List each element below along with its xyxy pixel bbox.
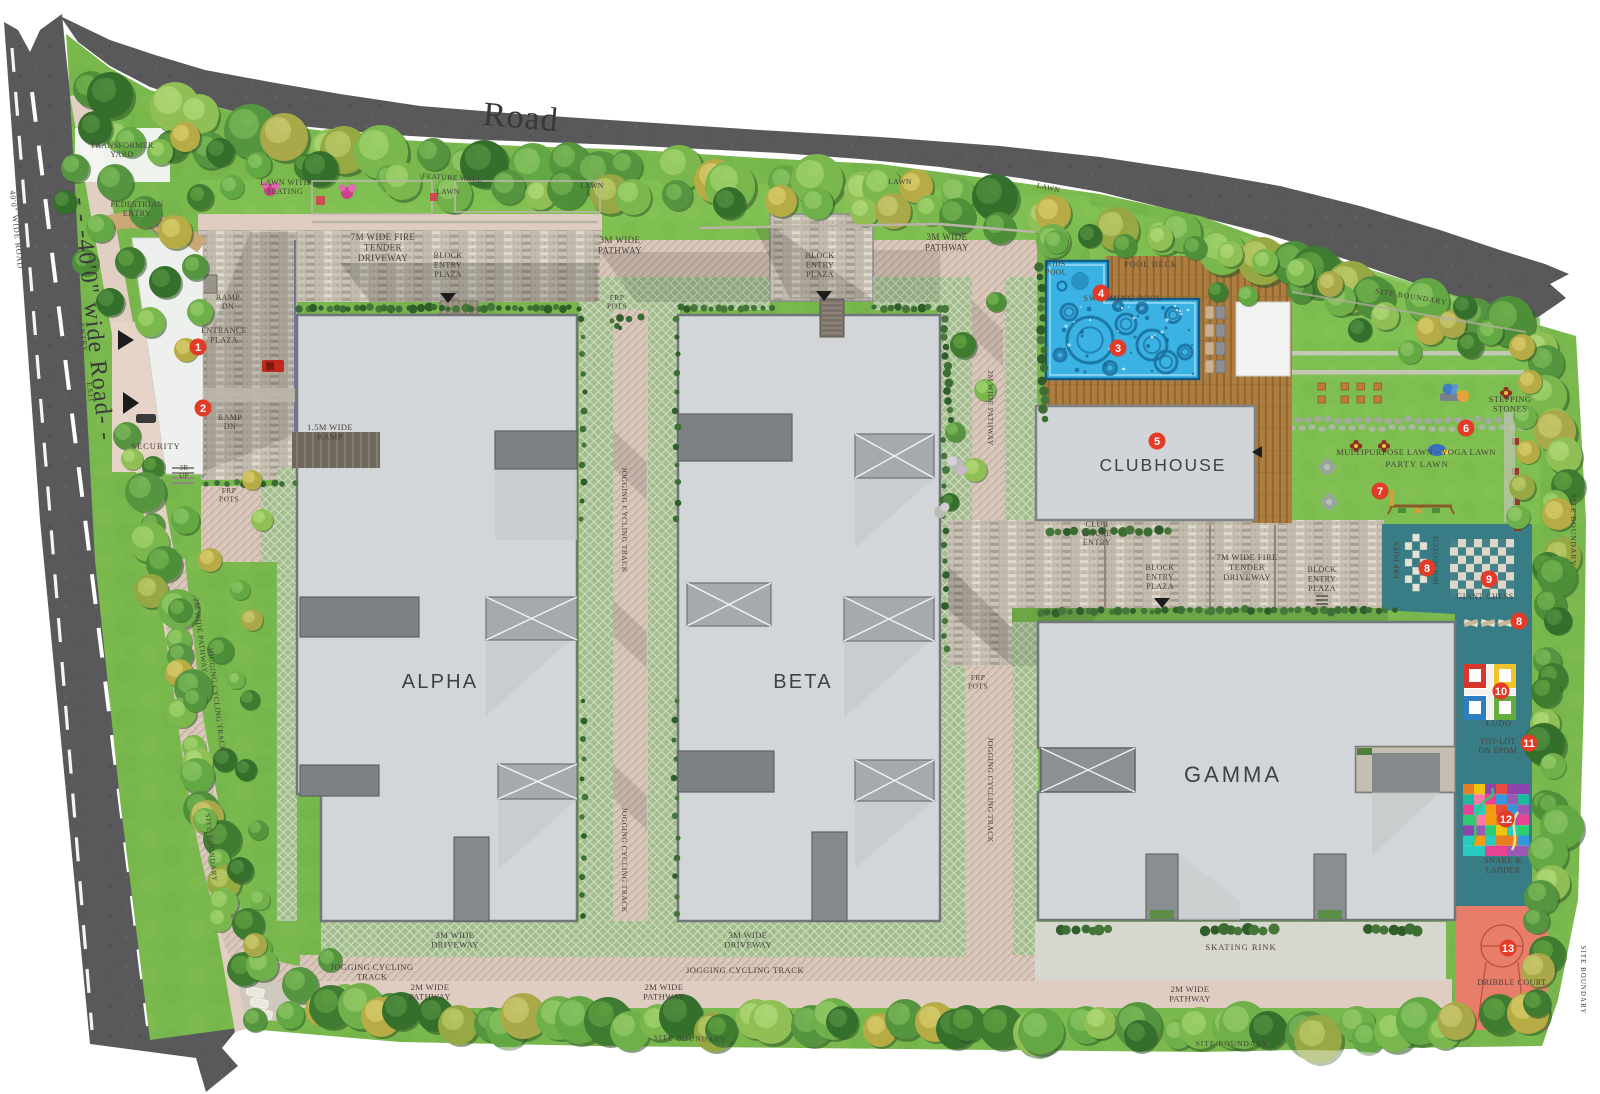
svg-text:JOGGING CYCLING TRACK: JOGGING CYCLING TRACK [986, 737, 995, 842]
svg-text:TOT-LOTON EPDM: TOT-LOTON EPDM [1479, 737, 1518, 755]
svg-text:SKATING RINK: SKATING RINK [1205, 942, 1276, 952]
svg-text:POOL DECK: POOL DECK [1124, 260, 1177, 269]
svg-text:KIDSPOOL: KIDSPOOL [1045, 259, 1066, 277]
svg-text:DRIBBLE COURT: DRIBBLE COURT [1477, 978, 1546, 987]
svg-text:LAWN: LAWN [580, 181, 604, 190]
svg-text:2M WIDEPATHWAY: 2M WIDEPATHWAY [1169, 984, 1211, 1004]
svg-text:2M WIDE PATHWAY: 2M WIDE PATHWAY [986, 370, 995, 446]
svg-text:7: 7 [1377, 486, 1383, 498]
svg-text:JOGGING CYCLING TRACK: JOGGING CYCLING TRACK [620, 807, 629, 912]
svg-text:FRPPOTS: FRPPOTS [219, 486, 239, 504]
svg-text:STEPPINGSTONES: STEPPINGSTONES [1489, 394, 1532, 414]
svg-text:BLOCKENTRYPLAZA: BLOCKENTRYPLAZA [433, 251, 462, 279]
svg-text:FRPPOTS: FRPPOTS [968, 673, 988, 691]
svg-text:Road: Road [482, 96, 561, 139]
svg-text:9: 9 [1486, 574, 1492, 586]
svg-text:CLUBHOUSE: CLUBHOUSE [1100, 455, 1227, 475]
svg-text:SNAKE &LADDER: SNAKE &LADDER [1484, 856, 1522, 875]
svg-text:GIANT CHESS: GIANT CHESS [1456, 592, 1513, 601]
svg-text:2: 2 [200, 403, 206, 415]
svg-text:LAWN WITHSEATING: LAWN WITHSEATING [260, 178, 310, 196]
svg-text:1: 1 [195, 342, 201, 354]
svg-text:2M WIDEPATHWAY: 2M WIDEPATHWAY [409, 982, 451, 1002]
svg-text:FRPPOTS: FRPPOTS [607, 293, 627, 311]
svg-text:3: 3 [1115, 343, 1121, 355]
svg-text:3M WIDEDRIVEWAY: 3M WIDEDRIVEWAY [724, 930, 772, 950]
svg-text:8: 8 [1516, 616, 1522, 628]
svg-text:10: 10 [1495, 686, 1507, 698]
svg-text:3M WIDEDRIVEWAY: 3M WIDEDRIVEWAY [431, 930, 479, 950]
svg-text:LAWN: LAWN [436, 187, 460, 196]
svg-text:6: 6 [1463, 423, 1469, 435]
svg-text:SITE BOUNDARY: SITE BOUNDARY [1196, 1039, 1269, 1048]
svg-text:SITE BOUNDARY: SITE BOUNDARY [1579, 946, 1587, 1015]
svg-text:4: 4 [1098, 288, 1105, 300]
svg-text:3M WIDEPATHWAY: 3M WIDEPATHWAY [598, 235, 642, 256]
svg-text:12: 12 [1500, 814, 1512, 826]
svg-text:ALPHA: ALPHA [402, 671, 479, 693]
svg-text:LUDO: LUDO [1486, 719, 1512, 728]
svg-text:FRP POTS: FRP POTS [1392, 541, 1401, 578]
svg-text:HOPSCOTCH: HOPSCOTCH [1431, 535, 1440, 584]
svg-text:SITE BOUNDARY: SITE BOUNDARY [1569, 494, 1578, 567]
svg-text:2M WIDEPATHWAY: 2M WIDEPATHWAY [643, 982, 685, 1002]
svg-text:MULTIPURPOSE LAWN - YOGA LAWN: MULTIPURPOSE LAWN - YOGA LAWN [1336, 447, 1496, 457]
svg-text:GAMMA: GAMMA [1184, 762, 1282, 787]
svg-text:8: 8 [1424, 563, 1430, 575]
svg-text:BETA: BETA [773, 671, 833, 693]
svg-text:3RUP: 3RUP [179, 464, 189, 480]
svg-text:PARTY LAWN: PARTY LAWN [1385, 459, 1448, 469]
svg-text:11: 11 [1523, 738, 1535, 750]
svg-text:13: 13 [1502, 943, 1514, 955]
svg-text:BLOCKENTRYPLAZA: BLOCKENTRYPLAZA [805, 251, 834, 279]
svg-text:5: 5 [1154, 436, 1160, 448]
svg-text:LAWN: LAWN [888, 177, 912, 186]
svg-text:SECURITY: SECURITY [131, 441, 181, 451]
svg-text:3M WIDEPATHWAY: 3M WIDEPATHWAY [925, 232, 969, 253]
svg-text:CLUBHOUSEENTRY: CLUBHOUSEENTRY [1083, 520, 1112, 547]
svg-text:JOGGING CYCLING TRACK: JOGGING CYCLING TRACK [620, 467, 629, 572]
svg-text:JOGGING CYCLING TRACK: JOGGING CYCLING TRACK [686, 965, 804, 975]
svg-text:BLOCKENTRYPLAZA: BLOCKENTRYPLAZA [1307, 565, 1336, 593]
svg-text:BLOCKENTRYPLAZA: BLOCKENTRYPLAZA [1145, 563, 1174, 591]
